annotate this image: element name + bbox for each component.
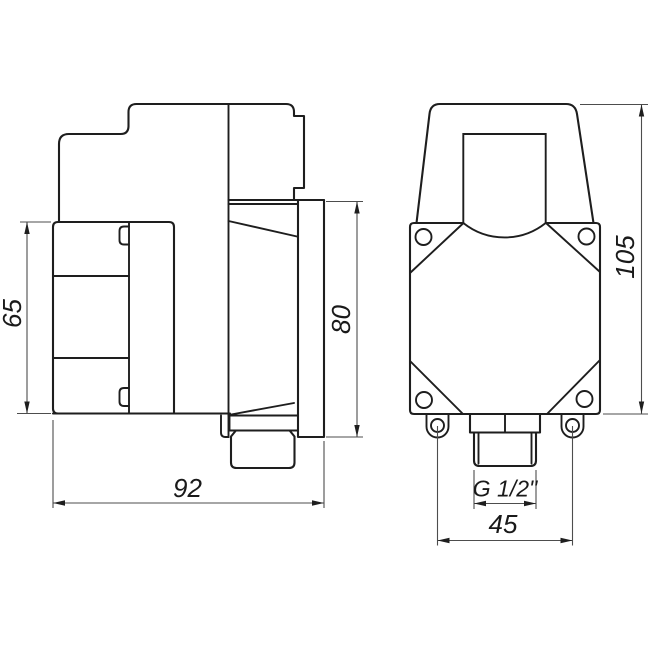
side-view bbox=[53, 104, 324, 468]
dim-105-arrow-down bbox=[639, 402, 644, 414]
valve-technical-drawing: 65 92 80 105 bbox=[0, 0, 650, 650]
dim-thread-label: G 1/2" bbox=[473, 476, 539, 502]
screw-hole-bottom-right bbox=[577, 391, 593, 407]
thread-nipple-side bbox=[231, 431, 295, 468]
dim-flange-height: 80 bbox=[326, 202, 363, 438]
chamfer-bottom-right bbox=[547, 360, 600, 414]
dim-92-arrow-right bbox=[312, 500, 324, 505]
dim-65-arrow-down bbox=[24, 402, 29, 414]
coil-block bbox=[53, 222, 129, 414]
dim-105-arrow-up bbox=[639, 105, 644, 117]
coil-clip-bottom bbox=[120, 388, 130, 406]
dim-thread-arrow-left bbox=[474, 501, 486, 506]
dim-coil-height: 65 bbox=[0, 222, 51, 414]
dim-80-arrow-up bbox=[354, 202, 359, 214]
valve-bottom-chamfer bbox=[229, 403, 295, 415]
body-front bbox=[410, 223, 600, 414]
technical-drawing-page: 65 92 80 105 bbox=[0, 0, 650, 650]
coil-arch bbox=[417, 104, 594, 223]
flange-plate bbox=[298, 200, 324, 437]
dim-92-arrow-left bbox=[53, 500, 65, 505]
dim-65-label: 65 bbox=[0, 299, 27, 328]
ear-side bbox=[221, 416, 229, 438]
screw-hole-bottom-left bbox=[416, 392, 432, 408]
screw-hole-top-right bbox=[579, 229, 595, 245]
dim-80-label: 80 bbox=[326, 305, 356, 334]
dim-65-arrow-up bbox=[24, 222, 29, 234]
thread-stub bbox=[474, 433, 536, 467]
dim-45-arrow-right bbox=[561, 538, 573, 543]
coil-clip-top bbox=[120, 227, 130, 245]
dim-45-arrow-left bbox=[438, 538, 450, 543]
screw-hole-top-left bbox=[416, 229, 432, 245]
dim-80-arrow-down bbox=[354, 425, 359, 437]
valve-top-chamfer bbox=[229, 221, 298, 237]
coil-window bbox=[463, 134, 545, 223]
hex-band-side bbox=[230, 416, 298, 431]
front-view bbox=[410, 104, 600, 466]
dim-45-label: 45 bbox=[489, 509, 518, 539]
dim-thread-size: G 1/2" bbox=[473, 470, 539, 509]
dim-105-label: 105 bbox=[610, 235, 640, 279]
dim-overall-height: 105 bbox=[580, 105, 648, 415]
dim-92-label: 92 bbox=[173, 473, 202, 503]
dim-overall-width: 92 bbox=[53, 420, 324, 508]
bracket-plate bbox=[129, 222, 174, 414]
coil-seat-arc bbox=[463, 223, 545, 237]
dim-thread-arrow-right bbox=[524, 501, 536, 506]
